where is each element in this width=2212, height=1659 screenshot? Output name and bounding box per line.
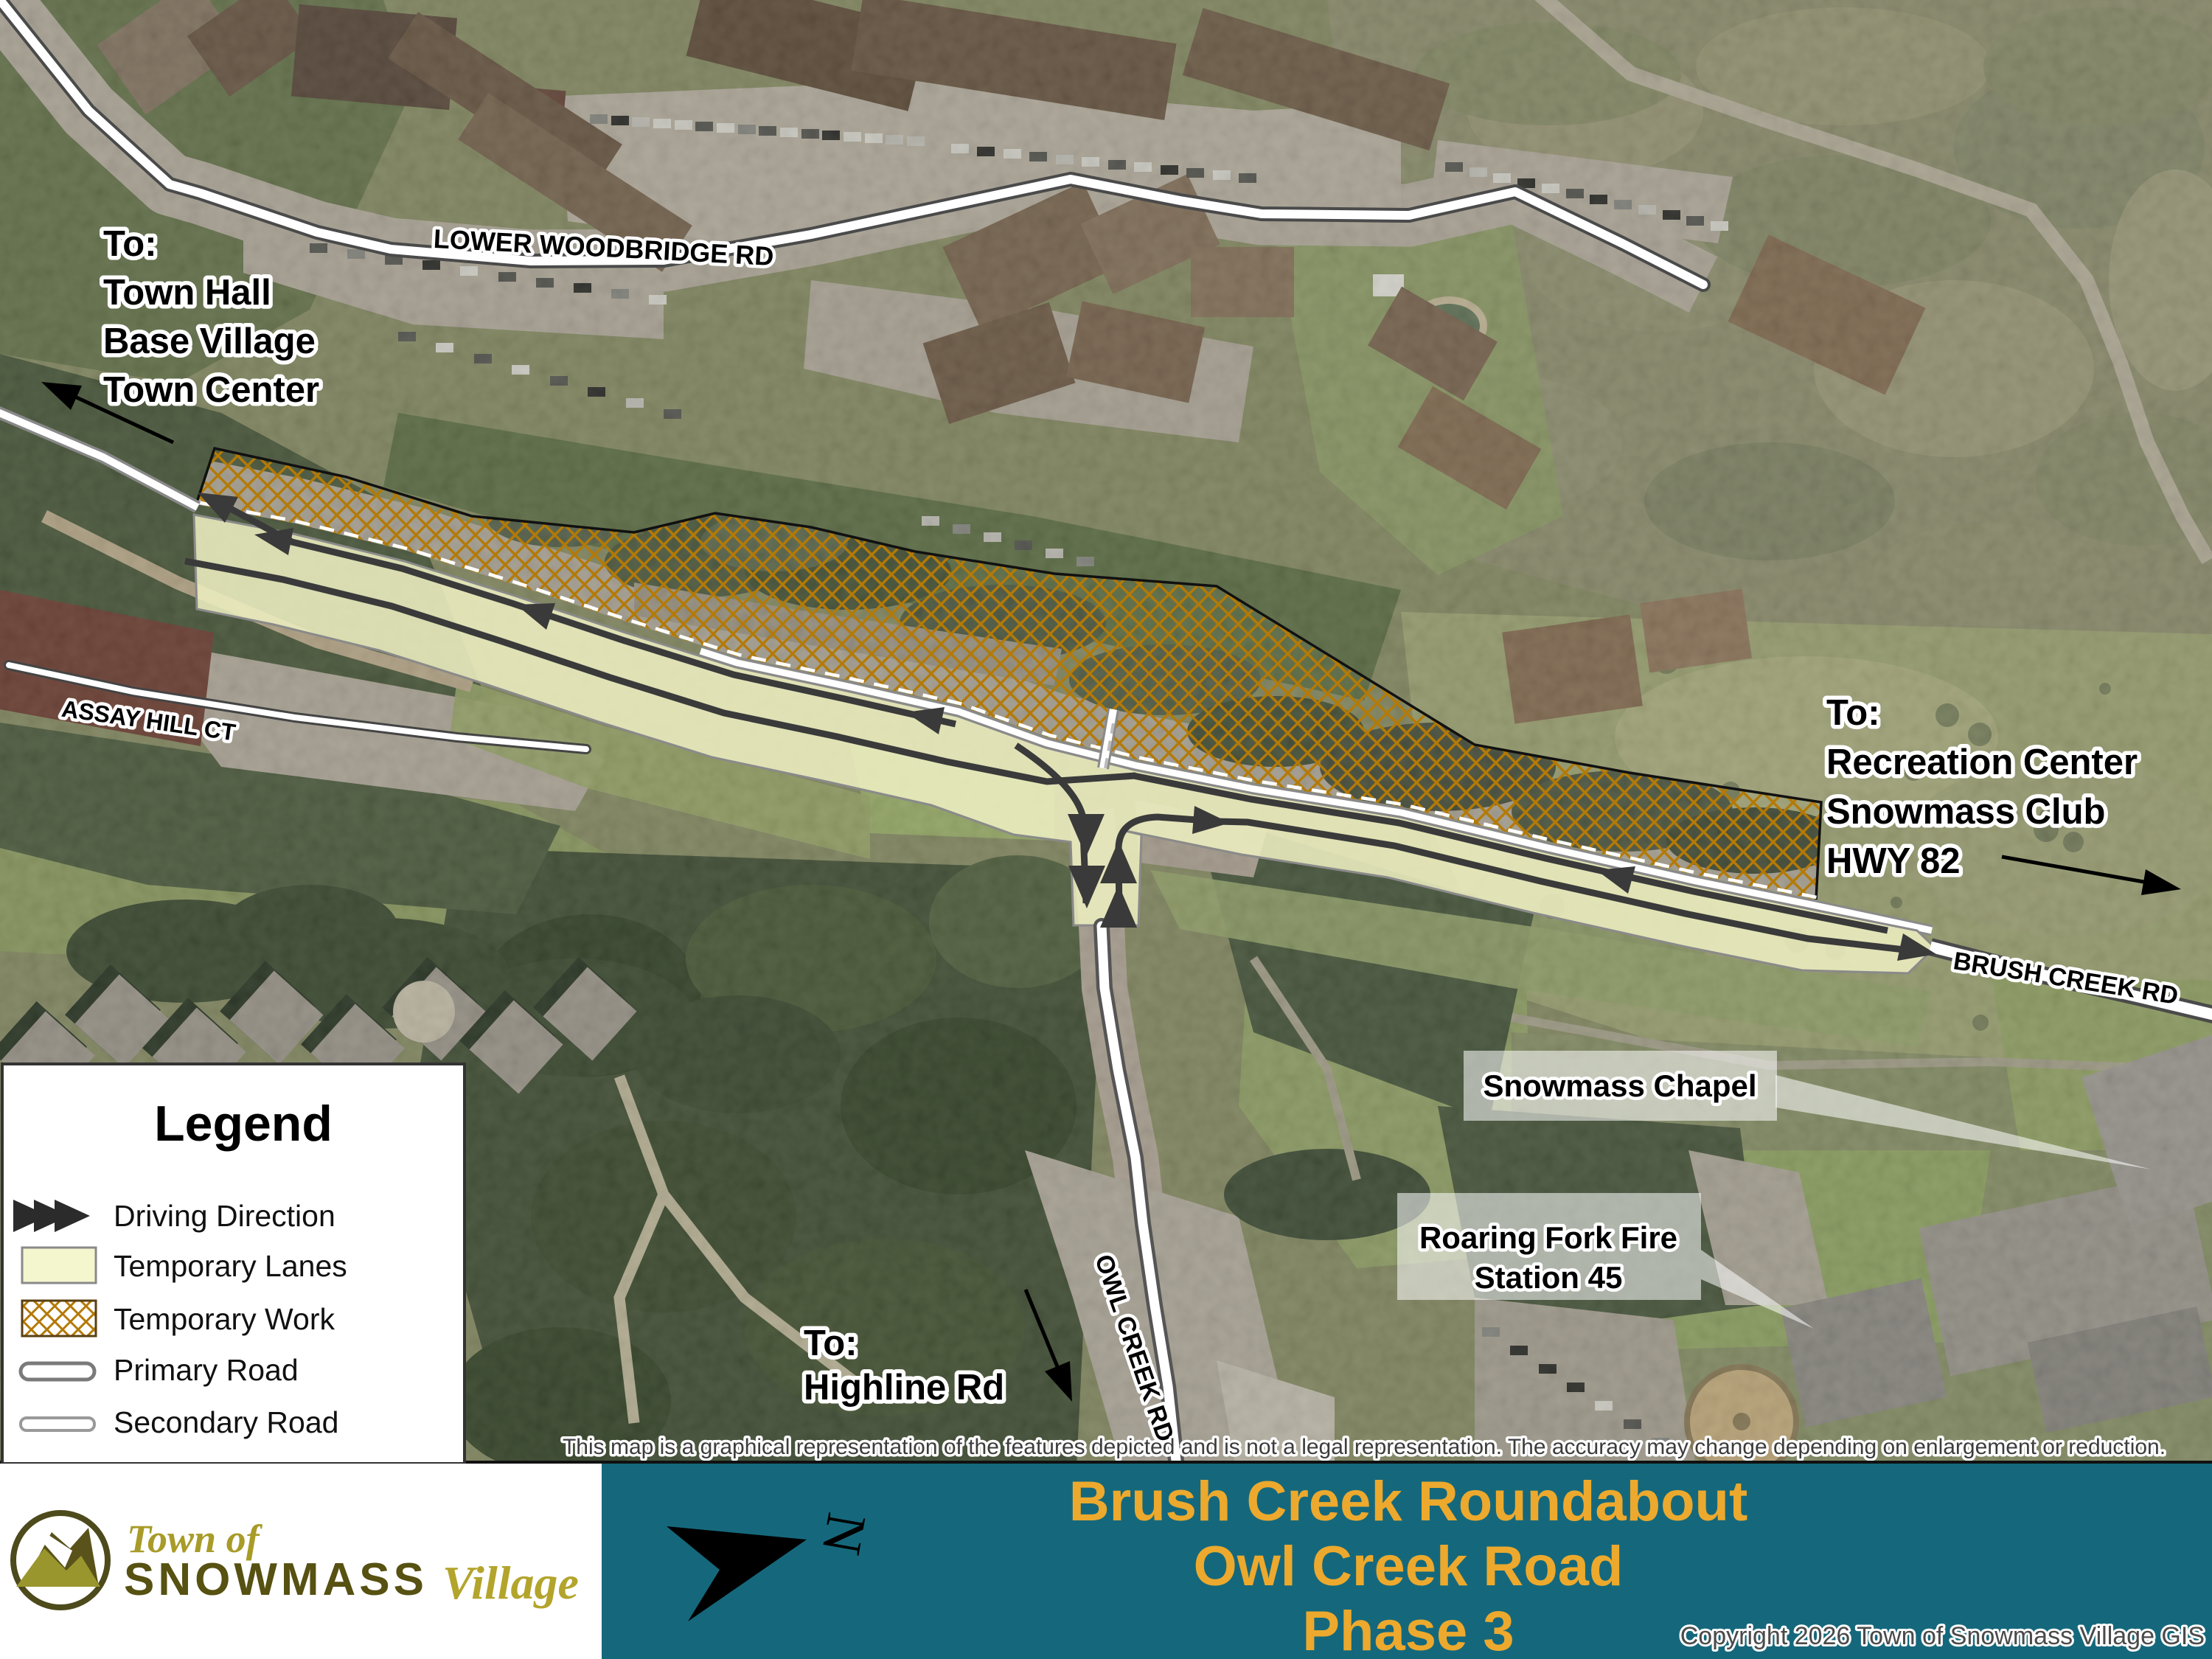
svg-text:Highline Rd: Highline Rd: [804, 1368, 1004, 1408]
svg-text:Town Hall: Town Hall: [103, 273, 271, 313]
svg-text:Village: Village: [442, 1557, 579, 1609]
svg-text:Roaring Fork Fire: Roaring Fork Fire: [1419, 1220, 1677, 1255]
svg-text:Snowmass Club: Snowmass Club: [1826, 792, 2105, 832]
svg-text:SNOWMASS: SNOWMASS: [124, 1554, 428, 1605]
svg-text:Town Center: Town Center: [103, 370, 319, 410]
svg-text:Temporary Work: Temporary Work: [114, 1302, 335, 1336]
svg-text:Phase 3: Phase 3: [1302, 1600, 1514, 1659]
svg-text:Temporary Lanes: Temporary Lanes: [114, 1249, 347, 1283]
svg-text:Legend: Legend: [154, 1096, 333, 1152]
svg-text:To:: To:: [103, 224, 157, 264]
svg-text:To:: To:: [804, 1324, 858, 1363]
svg-text:Recreation Center: Recreation Center: [1826, 742, 2138, 782]
svg-text:Base Village: Base Village: [103, 321, 316, 361]
svg-text:Owl Creek Road: Owl Creek Road: [1194, 1535, 1624, 1598]
svg-text:To:: To:: [1826, 693, 1880, 733]
svg-text:Secondary Road: Secondary Road: [114, 1405, 338, 1439]
svg-text:This map is a graphical repres: This map is a graphical representation o…: [563, 1435, 2166, 1459]
svg-text:Primary Road: Primary Road: [114, 1353, 299, 1387]
svg-text:Brush Creek Roundabout: Brush Creek Roundabout: [1069, 1470, 1748, 1533]
svg-text:Station 45: Station 45: [1475, 1260, 1623, 1295]
svg-text:Snowmass Chapel: Snowmass Chapel: [1483, 1068, 1756, 1103]
svg-text:HWY 82: HWY 82: [1826, 841, 1961, 881]
svg-text:Driving Direction: Driving Direction: [114, 1199, 335, 1233]
svg-text:Copyright 2026 Town of Snowmas: Copyright 2026 Town of Snowmass Village …: [1680, 1622, 2205, 1650]
